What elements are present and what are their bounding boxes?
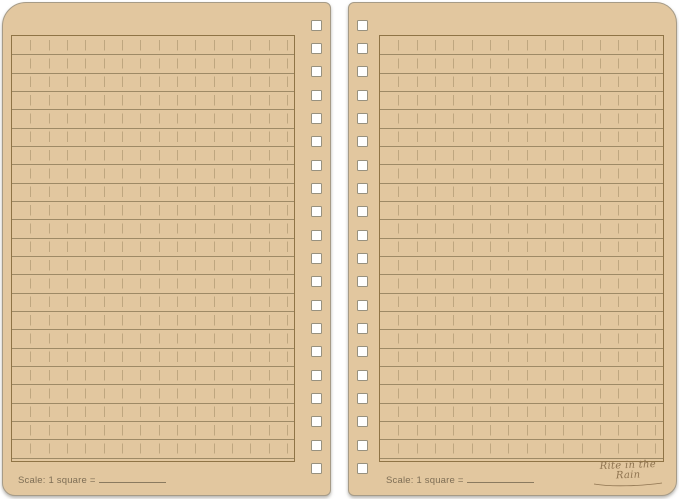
- spiral-hole: [357, 253, 368, 264]
- spiral-hole: [357, 300, 368, 311]
- notebook-page-right: Scale: 1 square = Rite in the Rain: [348, 2, 677, 496]
- spiral-hole: [357, 20, 368, 31]
- spiral-hole: [357, 90, 368, 101]
- brand-logo-flourish: [593, 482, 663, 487]
- spiral-hole: [311, 66, 322, 77]
- spiral-hole: [311, 113, 322, 124]
- spiral-hole: [311, 160, 322, 171]
- spiral-hole: [357, 113, 368, 124]
- brand-logo-text: Rite in the Rain: [590, 460, 667, 483]
- spiral-hole: [357, 370, 368, 381]
- spiral-hole: [357, 183, 368, 194]
- spiral-hole: [357, 136, 368, 147]
- spiral-hole: [357, 230, 368, 241]
- brand-logo: Rite in the Rain: [590, 461, 666, 487]
- spiral-hole: [357, 323, 368, 334]
- spiral-hole: [357, 43, 368, 54]
- spiral-hole: [311, 440, 322, 451]
- spiral-hole: [311, 370, 322, 381]
- grid-lines: [380, 36, 663, 461]
- spiral-hole: [357, 346, 368, 357]
- notebook-page-left: Scale: 1 square =: [2, 2, 331, 496]
- spiral-hole: [311, 183, 322, 194]
- spiral-hole: [357, 66, 368, 77]
- spiral-hole: [311, 206, 322, 217]
- spiral-hole: [311, 90, 322, 101]
- spiral-hole: [311, 230, 322, 241]
- spiral-hole: [311, 463, 322, 474]
- ruled-grid-area: [11, 35, 295, 462]
- spiral-hole: [311, 276, 322, 287]
- spiral-hole: [311, 323, 322, 334]
- scale-blank-line: [99, 473, 166, 483]
- scale-label-text: Scale: 1 square =: [386, 475, 464, 486]
- scale-label-text: Scale: 1 square =: [18, 475, 96, 486]
- scale-blank-line: [467, 473, 534, 483]
- spiral-hole: [311, 136, 322, 147]
- spiral-hole: [357, 416, 368, 427]
- spiral-hole: [357, 463, 368, 474]
- scale-label: Scale: 1 square =: [386, 473, 534, 486]
- grid-lines: [12, 36, 294, 461]
- spiral-hole: [311, 300, 322, 311]
- ruled-grid-area: [379, 35, 664, 462]
- spiral-hole: [311, 253, 322, 264]
- spiral-hole: [357, 276, 368, 287]
- spiral-hole: [357, 440, 368, 451]
- notebook-product-image: { "product": { "description": "Open spir…: [0, 0, 679, 499]
- spiral-hole: [357, 393, 368, 404]
- spiral-hole: [357, 206, 368, 217]
- spiral-hole: [311, 43, 322, 54]
- spiral-hole: [311, 346, 322, 357]
- spiral-hole: [357, 160, 368, 171]
- spiral-hole: [311, 416, 322, 427]
- scale-label: Scale: 1 square =: [18, 473, 166, 486]
- spiral-hole: [311, 20, 322, 31]
- spiral-hole: [311, 393, 322, 404]
